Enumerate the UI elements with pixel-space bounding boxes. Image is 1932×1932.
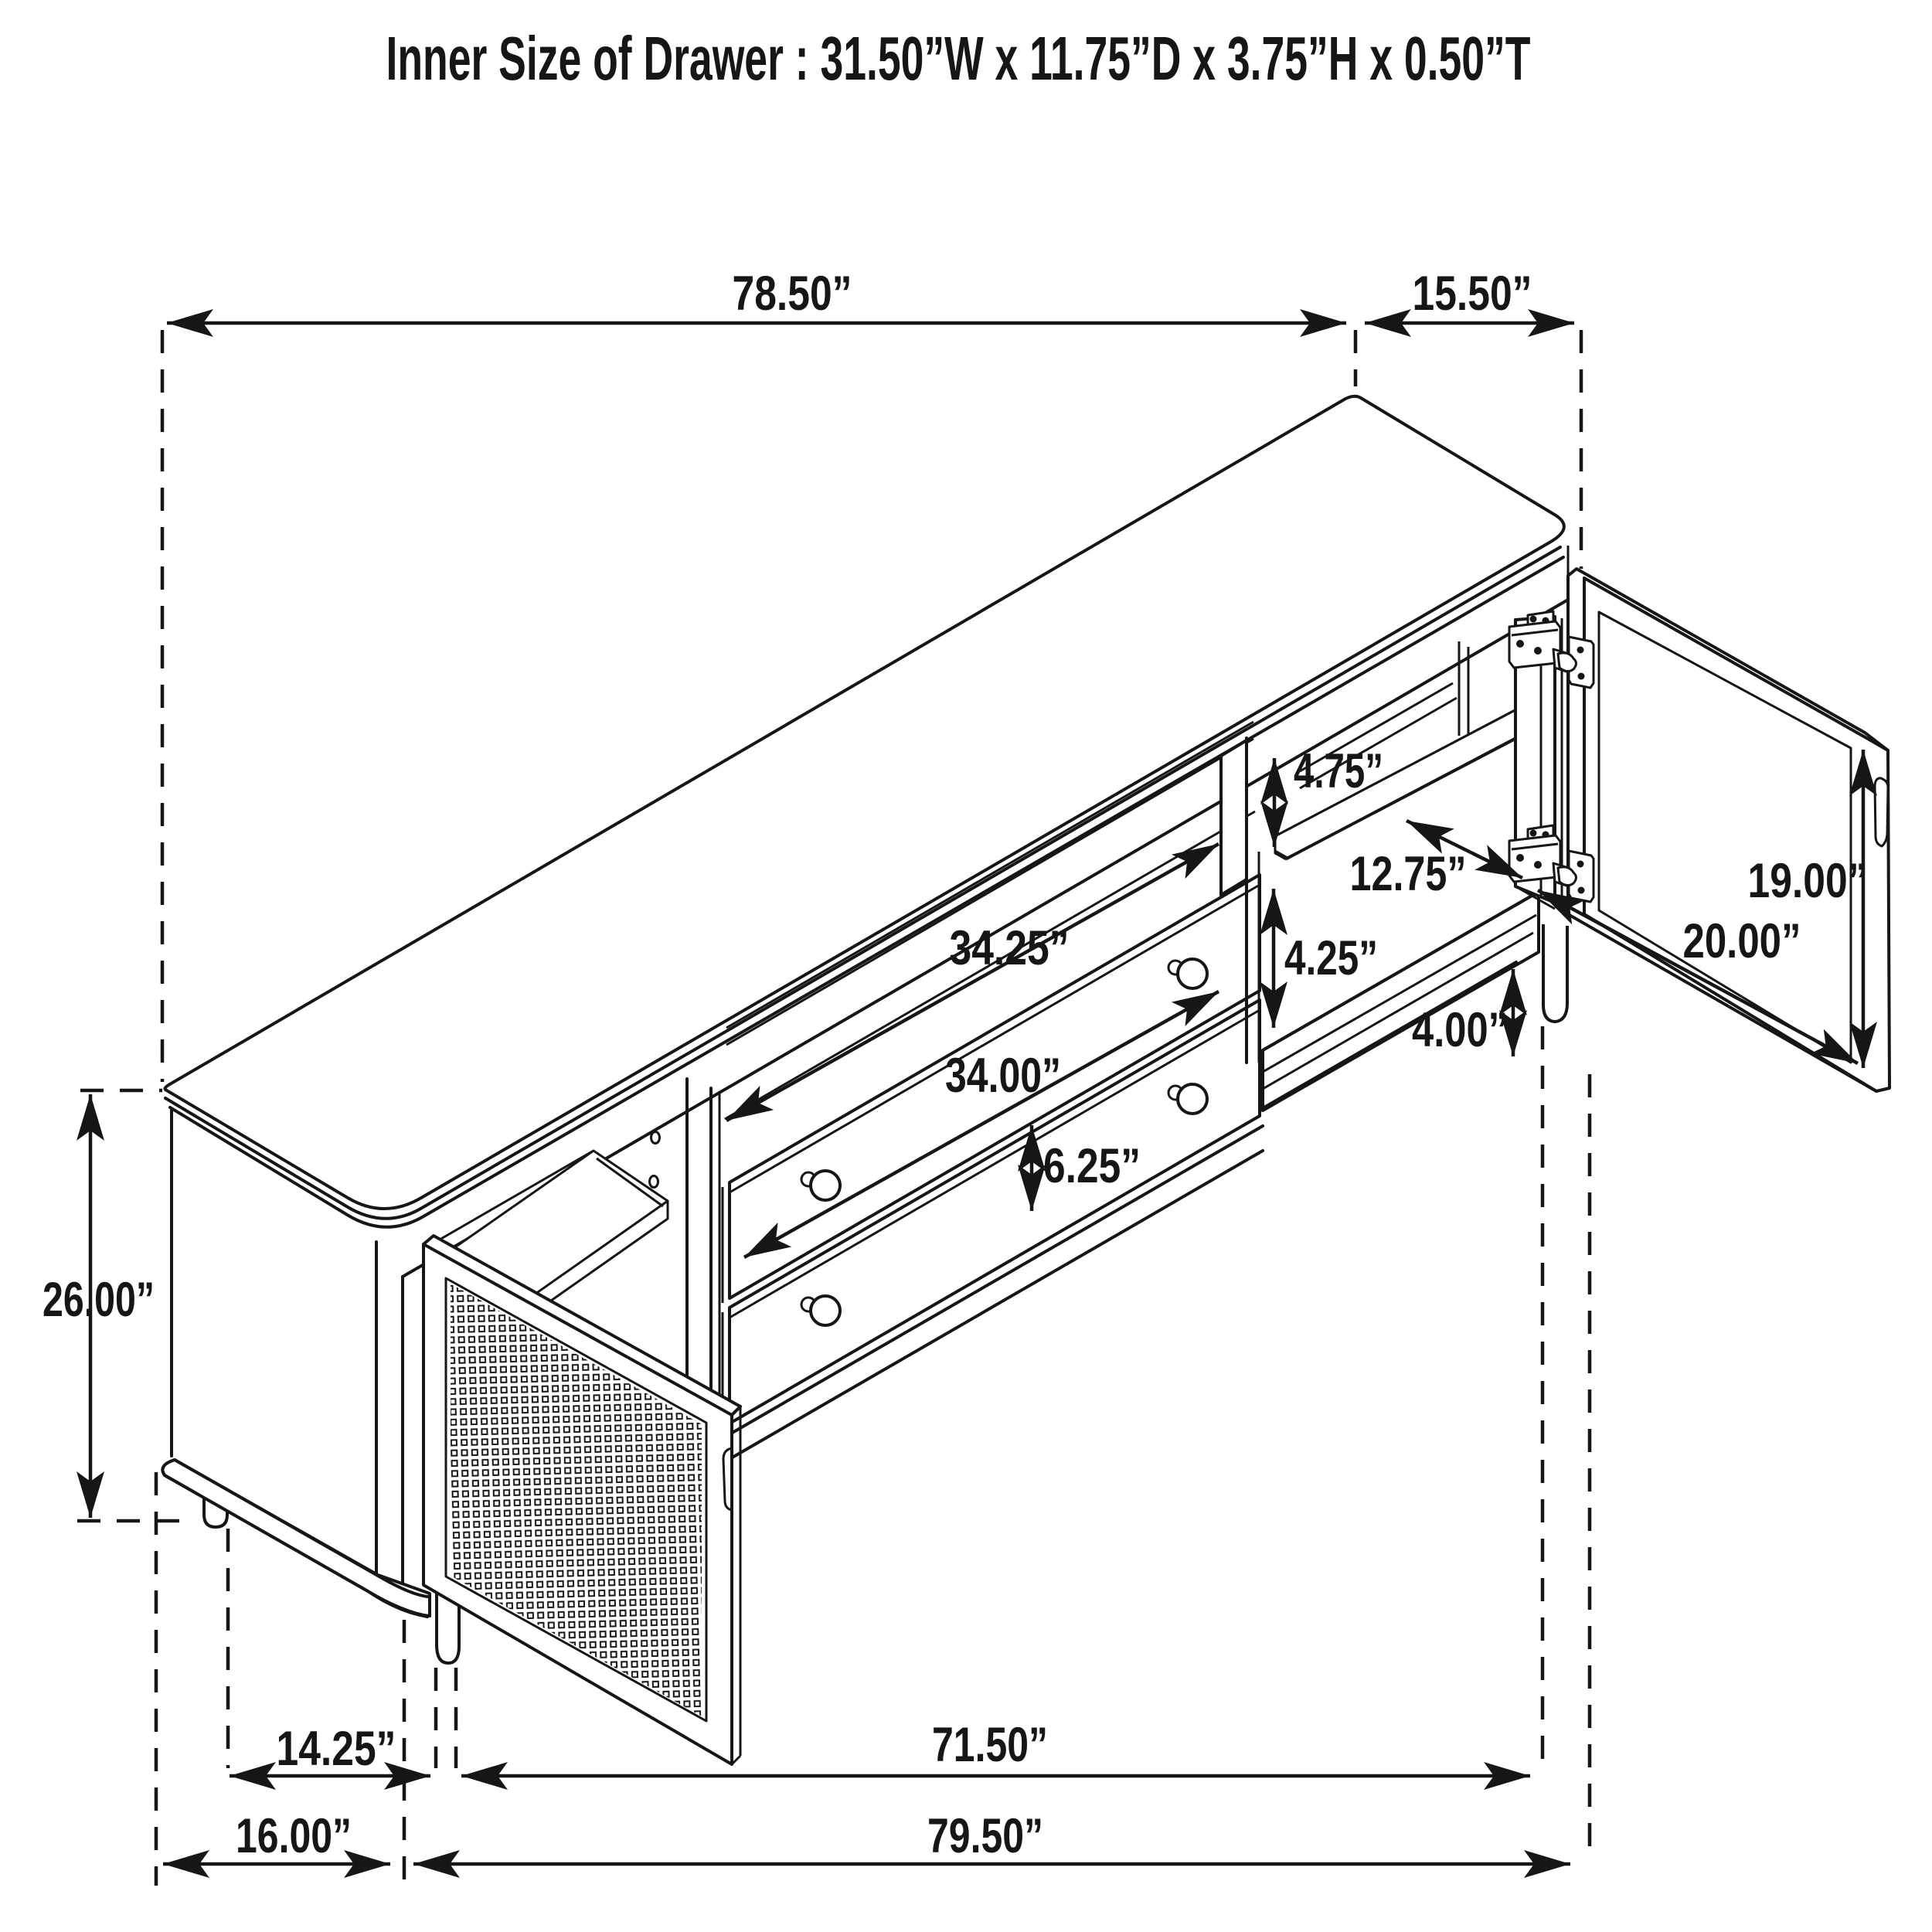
svg-text:34.25”: 34.25” (950, 921, 1070, 975)
svg-text:19.00”: 19.00” (1748, 854, 1868, 908)
svg-text:12.75”: 12.75” (1350, 847, 1467, 901)
svg-text:15.50”: 15.50” (1413, 267, 1532, 321)
svg-text:78.50”: 78.50” (733, 267, 852, 321)
svg-text:16.00”: 16.00” (236, 1809, 352, 1863)
svg-text:Inner Size of Drawer : 31.50”W: Inner Size of Drawer : 31.50”W x 11.75”D… (386, 24, 1531, 93)
svg-text:4.00”: 4.00” (1412, 1003, 1508, 1057)
svg-text:14.25”: 14.25” (277, 1722, 396, 1776)
svg-text:4.75”: 4.75” (1294, 744, 1383, 798)
svg-text:6.25”: 6.25” (1043, 1139, 1141, 1193)
svg-text:34.00”: 34.00” (945, 1049, 1061, 1103)
svg-text:71.50”: 71.50” (932, 1718, 1048, 1772)
svg-text:4.25”: 4.25” (1284, 931, 1378, 985)
svg-text:79.50”: 79.50” (927, 1809, 1043, 1863)
svg-text:26.00”: 26.00” (43, 1273, 155, 1327)
svg-text:20.00”: 20.00” (1683, 914, 1801, 968)
